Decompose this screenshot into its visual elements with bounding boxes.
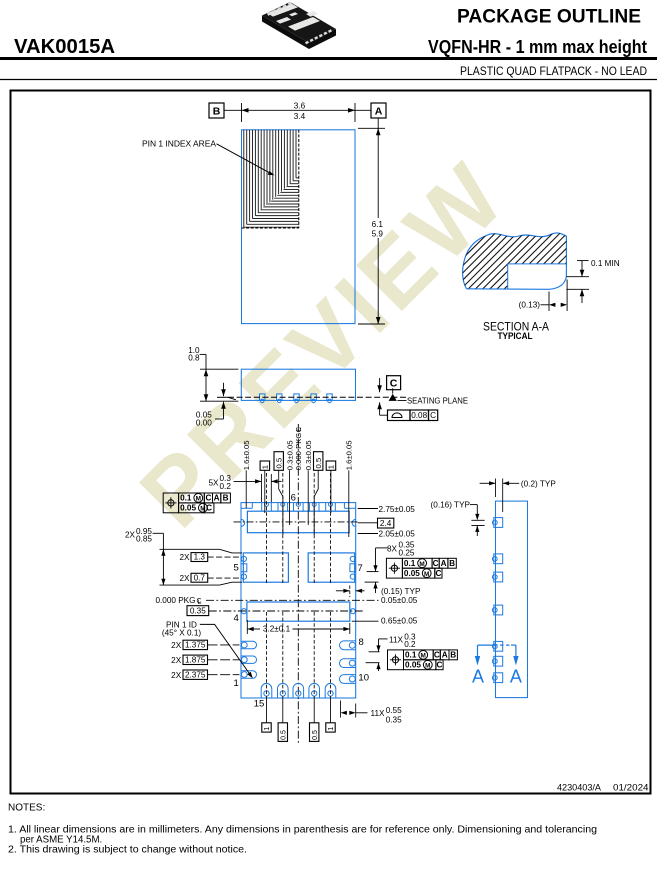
svg-text:(45° X 0.1): (45° X 0.1) xyxy=(162,628,201,637)
svg-text:B: B xyxy=(213,105,221,117)
svg-text:M: M xyxy=(419,561,424,568)
svg-text:1.6±0.05: 1.6±0.05 xyxy=(242,440,251,470)
svg-text:1: 1 xyxy=(264,727,271,731)
svg-text:8: 8 xyxy=(359,637,364,648)
svg-text:M: M xyxy=(196,496,201,503)
svg-text:(0.13): (0.13) xyxy=(519,300,541,309)
svg-text:2.05±0.05: 2.05±0.05 xyxy=(379,530,416,539)
svg-text:0.1: 0.1 xyxy=(180,494,192,503)
svg-text:A: A xyxy=(441,559,447,568)
svg-text:1.3: 1.3 xyxy=(194,553,206,562)
svg-text:A: A xyxy=(442,651,448,660)
svg-text:0.65±0.05: 0.65±0.05 xyxy=(381,617,418,626)
svg-text:NOTES:: NOTES: xyxy=(8,803,45,814)
svg-text:A: A xyxy=(375,105,383,117)
svg-text:6.1: 6.1 xyxy=(372,220,384,229)
svg-text:0.1 MIN: 0.1 MIN xyxy=(591,259,620,268)
svg-text:6: 6 xyxy=(291,493,296,504)
svg-text:4: 4 xyxy=(234,613,239,624)
svg-text:0.55: 0.55 xyxy=(386,706,402,715)
svg-text:VQFN-HR - 1 mm max height: VQFN-HR - 1 mm max height xyxy=(428,36,647,57)
svg-text:A: A xyxy=(510,666,522,686)
svg-text:2.375: 2.375 xyxy=(185,670,206,679)
svg-text:TYPICAL: TYPICAL xyxy=(498,331,533,341)
svg-text:0.00: 0.00 xyxy=(196,419,212,428)
svg-text:0.5: 0.5 xyxy=(280,730,287,740)
svg-text:C: C xyxy=(437,661,443,670)
svg-text:1: 1 xyxy=(328,727,335,731)
svg-text:10: 10 xyxy=(358,673,369,684)
svg-text:0.1: 0.1 xyxy=(405,651,417,660)
svg-text:5: 5 xyxy=(234,563,239,574)
svg-text:2X: 2X xyxy=(171,656,182,665)
svg-text:0.05: 0.05 xyxy=(405,661,421,670)
svg-text:0.3±0.05: 0.3±0.05 xyxy=(304,440,313,470)
svg-text:VAK0015A: VAK0015A xyxy=(14,36,115,58)
svg-text:3.2±0.1: 3.2±0.1 xyxy=(263,625,291,634)
svg-text:0.5: 0.5 xyxy=(312,730,319,740)
svg-text:1.375: 1.375 xyxy=(185,641,206,650)
svg-text:(0.2) TYP: (0.2) TYP xyxy=(521,480,556,489)
svg-text:B: B xyxy=(450,651,456,660)
svg-text:1.875: 1.875 xyxy=(185,656,206,665)
svg-text:0.7: 0.7 xyxy=(194,573,206,582)
svg-text:M: M xyxy=(424,571,429,578)
svg-text:C: C xyxy=(435,569,441,578)
svg-text:(0.16) TYP: (0.16) TYP xyxy=(431,500,471,509)
svg-text:PLASTIC QUAD FLATPACK - NO LEA: PLASTIC QUAD FLATPACK - NO LEAD xyxy=(460,64,647,78)
svg-text:B: B xyxy=(449,559,455,568)
svg-text:2. This drawing is subject to: 2. This drawing is subject to change wit… xyxy=(8,845,247,856)
svg-text:M: M xyxy=(421,653,426,660)
svg-text:1.6±0.05: 1.6±0.05 xyxy=(345,440,354,470)
svg-text:3.6: 3.6 xyxy=(294,102,306,111)
svg-text:A: A xyxy=(214,494,220,503)
svg-text:8X: 8X xyxy=(387,544,398,553)
svg-text:2.4: 2.4 xyxy=(380,519,392,528)
svg-text:0.35: 0.35 xyxy=(190,606,206,615)
svg-text:0.25: 0.25 xyxy=(399,548,415,557)
svg-text:M: M xyxy=(425,662,430,669)
svg-text:PIN 1 INDEX AREA: PIN 1 INDEX AREA xyxy=(142,140,217,149)
svg-text:15: 15 xyxy=(254,699,265,710)
svg-text:0.2: 0.2 xyxy=(220,482,232,491)
svg-text:2X: 2X xyxy=(171,671,182,680)
svg-text:0.000 PKG: 0.000 PKG xyxy=(155,596,195,605)
svg-text:0.1: 0.1 xyxy=(404,559,416,568)
svg-text:2X: 2X xyxy=(179,574,190,583)
svg-text:L: L xyxy=(296,427,303,431)
svg-text:SEATING PLANE: SEATING PLANE xyxy=(407,396,468,406)
svg-text:0.05: 0.05 xyxy=(180,504,196,513)
svg-text:4230403/A: 4230403/A xyxy=(557,782,602,793)
svg-text:B: B xyxy=(223,494,229,503)
svg-text:11X: 11X xyxy=(389,635,403,644)
svg-text:0.85: 0.85 xyxy=(136,535,152,544)
svg-text:(0.15) TYP: (0.15) TYP xyxy=(381,587,421,596)
svg-text:2X: 2X xyxy=(179,553,190,562)
svg-text:C: C xyxy=(206,504,212,513)
svg-text:C: C xyxy=(434,651,440,660)
svg-text:C: C xyxy=(390,378,398,390)
svg-text:0.05: 0.05 xyxy=(404,569,420,578)
svg-text:PACKAGE OUTLINE: PACKAGE OUTLINE xyxy=(457,6,641,28)
svg-text:1: 1 xyxy=(327,465,336,469)
svg-text:2.75±0.05: 2.75±0.05 xyxy=(379,505,416,514)
svg-text:0.000 PKG: 0.000 PKG xyxy=(294,433,303,471)
svg-text:1: 1 xyxy=(234,678,239,689)
svg-text:C: C xyxy=(205,494,211,503)
svg-text:C: C xyxy=(433,559,439,568)
svg-text:0.3±0.05: 0.3±0.05 xyxy=(285,440,294,470)
svg-text:0.08: 0.08 xyxy=(411,411,427,420)
svg-text:0.5: 0.5 xyxy=(275,458,284,469)
svg-text:2X: 2X xyxy=(171,641,182,650)
svg-text:0.2: 0.2 xyxy=(404,640,416,649)
svg-text:5X: 5X xyxy=(208,479,219,488)
svg-text:7: 7 xyxy=(358,563,363,574)
svg-text:0.05±0.05: 0.05±0.05 xyxy=(381,596,418,605)
svg-text:11X: 11X xyxy=(371,709,385,718)
svg-text:5.9: 5.9 xyxy=(372,229,384,238)
svg-text:C: C xyxy=(430,411,436,420)
svg-text:0.5: 0.5 xyxy=(314,458,323,469)
svg-text:2X: 2X xyxy=(125,530,136,539)
svg-text:01/2024: 01/2024 xyxy=(613,782,649,793)
svg-text:0.8: 0.8 xyxy=(188,353,200,362)
svg-text:A: A xyxy=(472,666,484,686)
svg-text:0.35: 0.35 xyxy=(386,716,402,725)
svg-text:1: 1 xyxy=(261,465,270,469)
svg-text:3.4: 3.4 xyxy=(294,112,306,121)
